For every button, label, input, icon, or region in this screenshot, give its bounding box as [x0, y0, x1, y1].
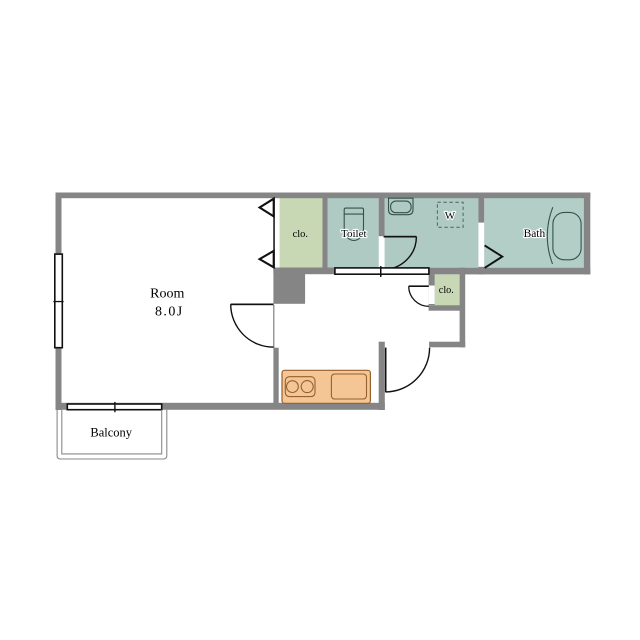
- svg-text:W: W: [445, 210, 456, 222]
- svg-text:clo.: clo.: [293, 229, 308, 240]
- svg-text:Balcony: Balcony: [90, 426, 132, 440]
- svg-text:8.0J: 8.0J: [155, 305, 184, 320]
- svg-text:Toilet: Toilet: [341, 228, 367, 240]
- svg-text:Room: Room: [150, 287, 184, 302]
- svg-text:clo.: clo.: [439, 285, 454, 296]
- svg-text:Bath: Bath: [524, 228, 546, 240]
